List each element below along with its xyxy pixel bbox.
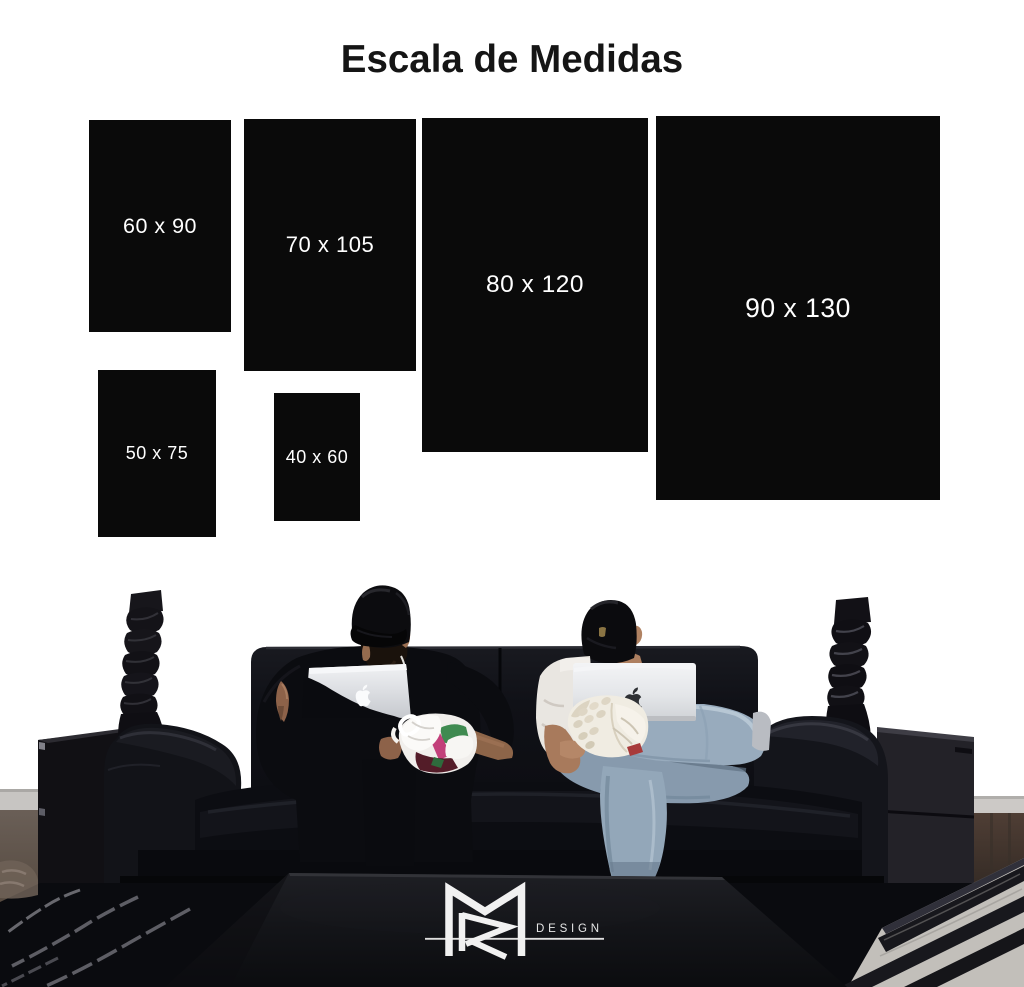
svg-text:DESIGN: DESIGN <box>536 923 603 935</box>
